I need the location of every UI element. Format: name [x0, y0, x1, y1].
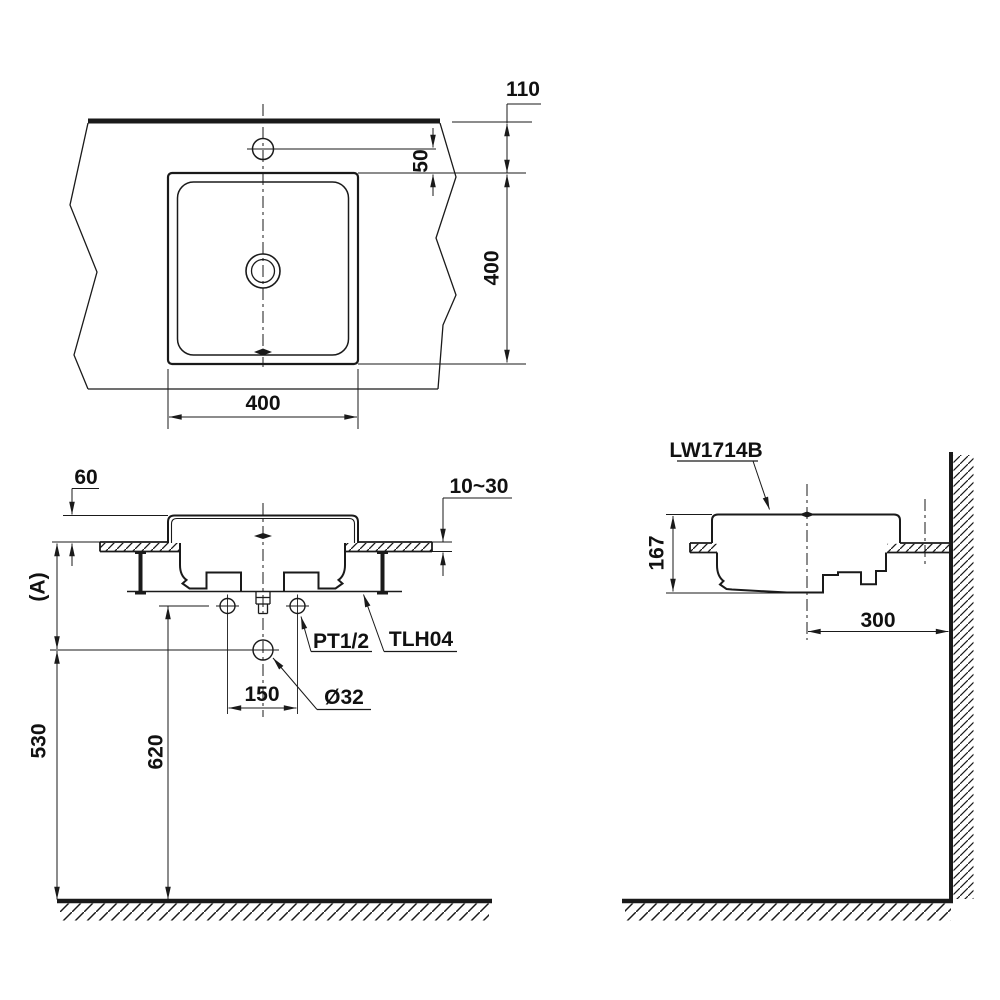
dim-150-text: 150 — [244, 683, 279, 706]
dim-10-30-text: 10~30 — [450, 475, 509, 498]
front-view — [50, 489, 512, 921]
dim-60 — [52, 489, 168, 567]
dim-167 — [666, 515, 787, 594]
label-o32-text: Ø32 — [324, 686, 364, 709]
break-line-left — [70, 123, 97, 389]
front-view-texts: 60 10~30 (A) 530 620 150 Ø32 PT1/2 TLH04 — [27, 466, 509, 770]
dim-10-30 — [432, 498, 512, 576]
dim-110-text: 110 — [506, 78, 540, 101]
washbasin-installation-drawing: 110 50 400 400 — [0, 0, 1000, 1000]
dim-530-text: 530 — [28, 723, 51, 758]
bowl-profile-left — [180, 543, 241, 592]
label-tlh04-text: TLH04 — [389, 628, 454, 651]
bowl-profile-right — [284, 543, 345, 592]
dim-60-text: 60 — [74, 466, 97, 489]
dim-a-text: (A) — [27, 572, 50, 601]
label-pt12-text: PT1/2 — [313, 630, 369, 653]
rim-outline-side — [712, 515, 900, 544]
wall-hatch — [954, 455, 974, 899]
dim-300-text: 300 — [860, 609, 895, 632]
bowl-profile-side — [717, 553, 886, 593]
floor-hatch-right — [625, 904, 951, 921]
label-model-text: LW1714B — [669, 439, 762, 462]
dim-400v-text: 400 — [481, 250, 504, 285]
side-view — [622, 452, 974, 921]
dim-50-text: 50 — [410, 149, 433, 172]
leader-model — [677, 461, 770, 510]
drawing-svg: 110 50 400 400 — [0, 0, 1000, 1000]
side-view-texts: LW1714B 167 300 — [646, 439, 896, 632]
top-view — [70, 104, 541, 429]
dim-400h-text: 400 — [245, 392, 280, 415]
mounting-bolts — [135, 552, 388, 595]
dim-110 — [507, 104, 541, 173]
break-line-right — [436, 123, 456, 389]
floor-hatch-left — [60, 904, 489, 921]
dim-167-text: 167 — [646, 535, 669, 570]
dim-620-text: 620 — [145, 734, 168, 769]
